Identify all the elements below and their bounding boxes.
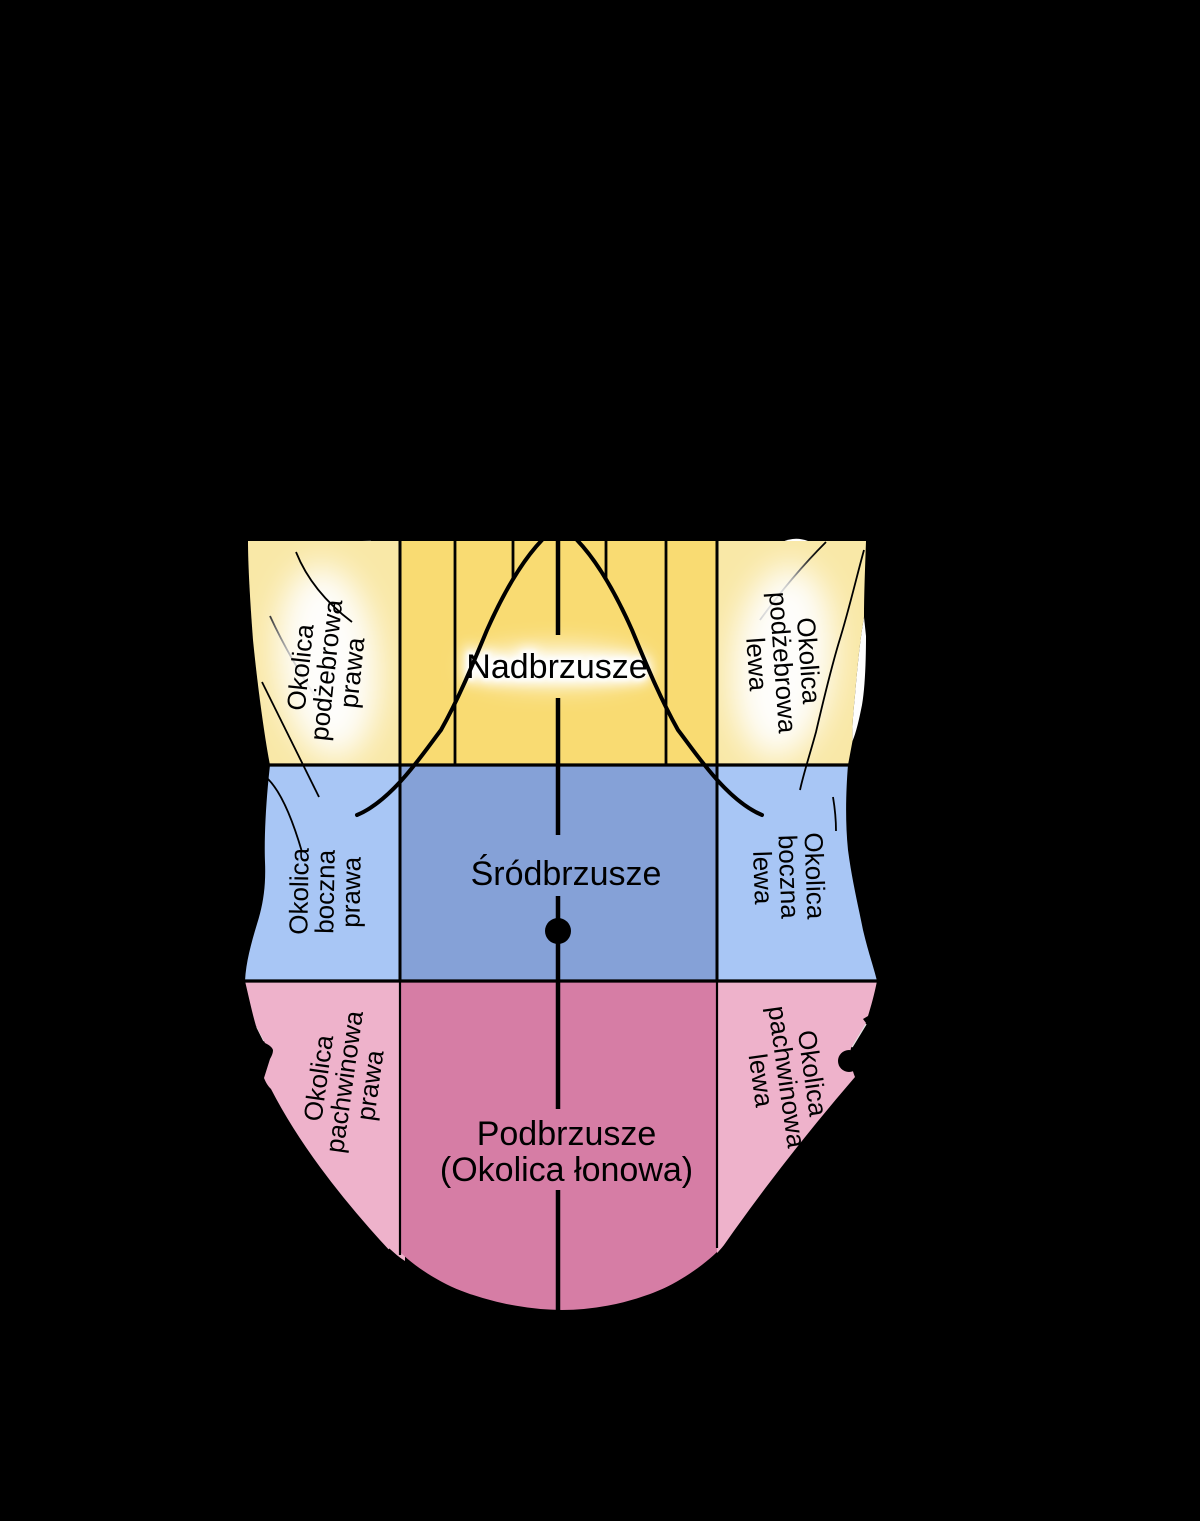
svg-text:prawa: prawa [335,856,366,928]
svg-text:Nadbrzusze: Nadbrzusze [466,648,647,686]
svg-text:lewa: lewa [747,850,779,905]
svg-text:(Okolica łonowa): (Okolica łonowa) [440,1151,693,1189]
svg-text:Podbrzusze: Podbrzusze [477,1115,657,1153]
svg-text:Śródbrzusze: Śródbrzusze [471,854,662,893]
svg-text:lewa: lewa [740,636,774,692]
